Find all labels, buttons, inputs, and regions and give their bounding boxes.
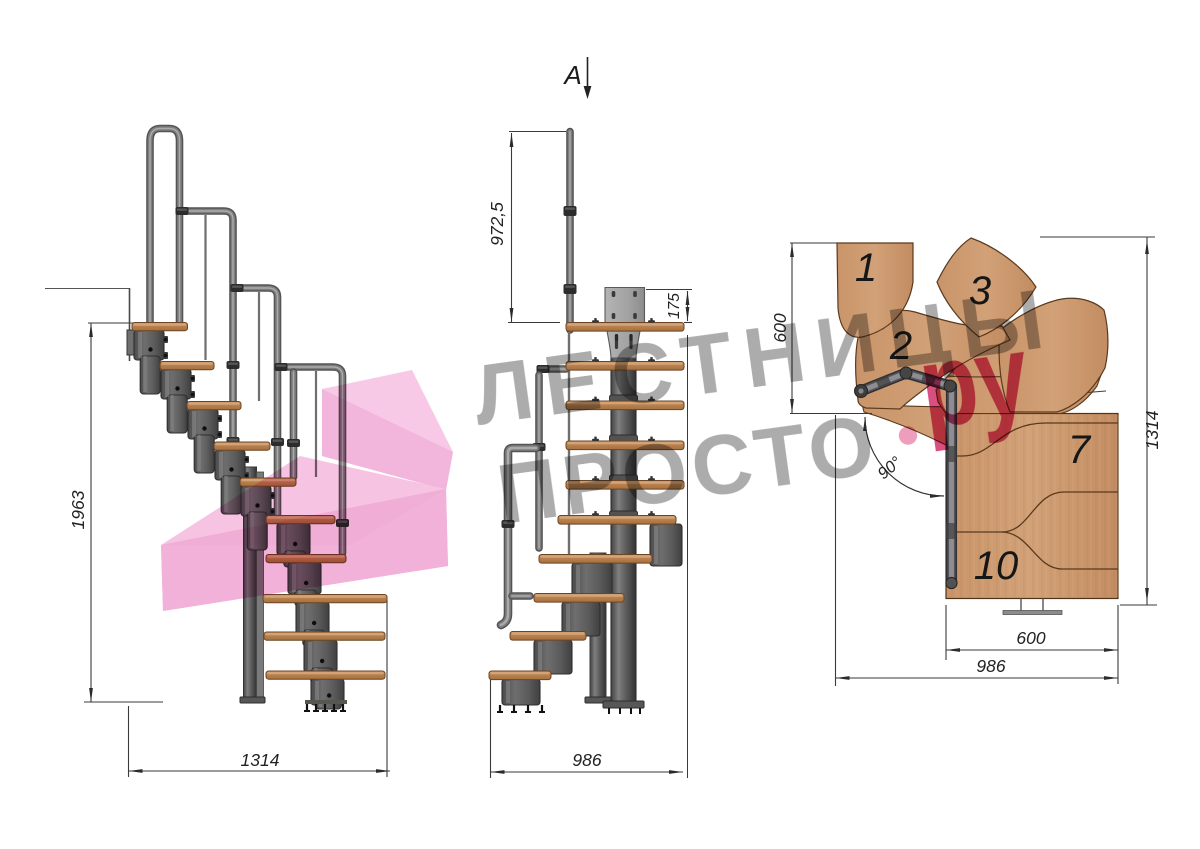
svg-text:ру: ру (911, 309, 1036, 453)
svg-text:10: 10 (974, 544, 1019, 588)
svg-text:1314: 1314 (1142, 410, 1162, 449)
svg-text:986: 986 (572, 750, 601, 770)
svg-text:А: А (562, 60, 581, 90)
svg-text:972,5: 972,5 (487, 202, 507, 246)
svg-text:1963: 1963 (68, 490, 88, 529)
svg-text:175: 175 (666, 293, 683, 319)
svg-text:986: 986 (976, 656, 1005, 676)
svg-text:1: 1 (855, 246, 877, 290)
svg-text:1314: 1314 (241, 750, 280, 770)
svg-text:600: 600 (1016, 628, 1045, 648)
svg-text:7: 7 (1068, 428, 1092, 472)
